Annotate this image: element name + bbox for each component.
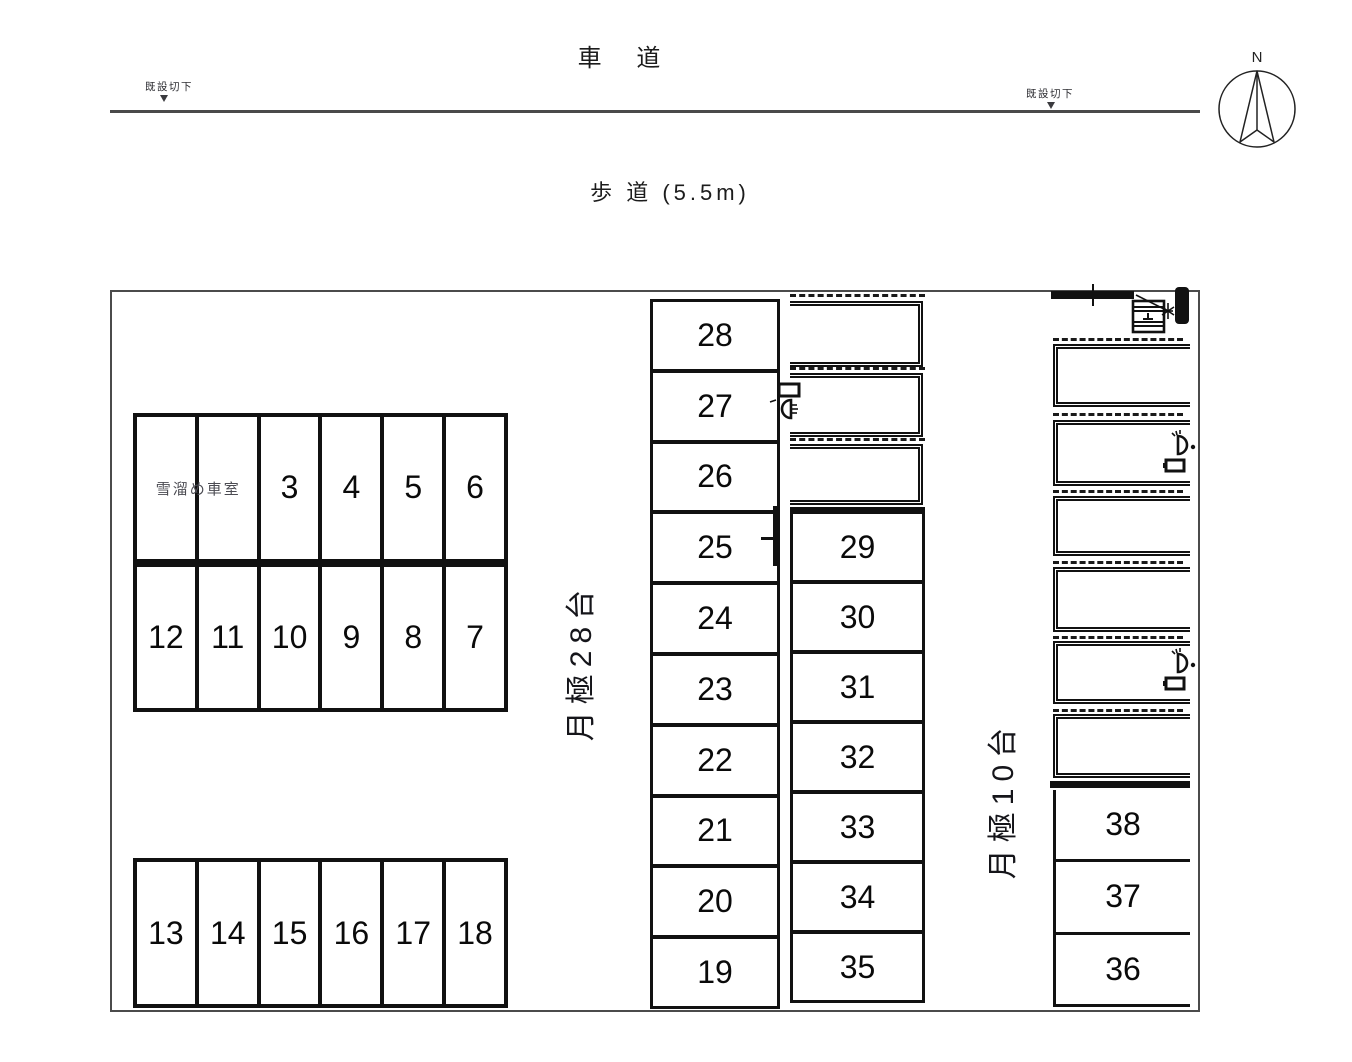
parking-space-cell: 13: [137, 862, 199, 1004]
north-arrow-icon: N: [1210, 42, 1304, 154]
street-lamp-icon: [1163, 430, 1199, 476]
parking-site-plan: 車 道 既設切下 既設切下 歩 道 (5.5m) N 3 4 5 6 12 11…: [0, 0, 1352, 1062]
dividing-wall: [790, 507, 925, 514]
stall-dashed-line: [1053, 636, 1183, 639]
sidewalk-label: 歩 道 (5.5m): [570, 175, 770, 207]
snow-bay-cell: [137, 417, 199, 559]
curb-cut-arrow-icon-left: [160, 95, 168, 102]
parking-space-cell: 18: [446, 862, 504, 1004]
street-lamp-icon: [1163, 648, 1199, 694]
stall-dashed-line: [790, 294, 925, 297]
parking-space-cell: 25: [653, 514, 777, 585]
parking-block-a: 3 4 5 6 12 11 10 9 8 7 雪溜め車室: [133, 413, 508, 712]
parking-block-b: 13 14 15 16 17 18: [133, 858, 508, 1008]
parking-space-cell: 21: [653, 798, 777, 869]
garage-stall: [790, 301, 923, 367]
parking-space-cell: 38: [1056, 790, 1190, 862]
parking-space-cell: 24: [653, 585, 777, 656]
utility-pole-icon: [1175, 287, 1189, 324]
stall-dashed-line: [1053, 561, 1183, 564]
stall-dashed-line: [1053, 338, 1183, 341]
garage-stall: [790, 444, 923, 505]
parking-space-cell: 20: [653, 868, 777, 939]
parking-space-cell: 9: [322, 567, 384, 709]
monthly-28-zone-label: 月極28台: [556, 583, 600, 741]
street-lamp-icon: [768, 382, 802, 422]
parking-space-cell: 31: [793, 654, 922, 724]
block-a-bottom-row: 12 11 10 9 8 7: [137, 567, 504, 709]
parking-space-cell: 11: [199, 567, 261, 709]
curb-cut-arrow-icon-right: [1047, 102, 1055, 109]
parking-space-cell: 26: [653, 444, 777, 515]
garage-stall: [1053, 567, 1190, 632]
parking-space-cell: 8: [384, 567, 446, 709]
curb-cut-label-right: 既設切下: [1026, 86, 1074, 101]
utility-box-icon: [1130, 293, 1178, 337]
stall-dashed-line: [1053, 490, 1183, 493]
dividing-wall: [1050, 781, 1190, 788]
gate-marker: [773, 506, 780, 566]
parking-space-cell: 22: [653, 727, 777, 798]
parking-space-cell: 27: [653, 373, 777, 444]
curb-cut-label-left: 既設切下: [145, 79, 193, 94]
parking-column-d: 29 30 31 32 33 34 35: [790, 514, 925, 1003]
block-b-row: 13 14 15 16 17 18: [137, 862, 504, 1004]
parking-space-cell: 12: [137, 567, 199, 709]
garage-stall: [790, 373, 923, 437]
parking-space-cell: 14: [199, 862, 261, 1004]
stall-dashed-line: [790, 367, 925, 370]
parking-column-e: 38 37 36: [1053, 790, 1190, 1007]
snow-bay-cell: [199, 417, 261, 559]
monthly-10-zone-label: 月極10台: [978, 721, 1022, 879]
stall-dashed-line: [790, 438, 925, 441]
parking-space-cell: 23: [653, 656, 777, 727]
parking-space-cell: 6: [446, 417, 504, 559]
stall-dashed-line: [1053, 413, 1183, 416]
gate-marker-tick: [761, 537, 773, 540]
garage-stall: [1053, 714, 1190, 778]
stall-dashed-line: [1053, 709, 1183, 712]
parking-space-cell: 19: [653, 939, 777, 1006]
parking-space-cell: 36: [1056, 935, 1190, 1007]
block-a-top-row: 3 4 5 6: [137, 417, 504, 559]
parking-space-cell: 35: [793, 934, 922, 1000]
parking-space-cell: 30: [793, 584, 922, 654]
carriageway-label: 車 道: [546, 38, 706, 73]
parking-space-cell: 15: [261, 862, 323, 1004]
parking-space-cell: 29: [793, 514, 922, 584]
parking-space-cell: 4: [322, 417, 384, 559]
parking-space-cell: 33: [793, 794, 922, 864]
garage-stall: [1053, 496, 1190, 556]
north-letter: N: [1252, 49, 1263, 66]
parking-space-cell: 28: [653, 302, 777, 373]
garage-stall: [1053, 344, 1190, 407]
parking-space-cell: 37: [1056, 862, 1190, 934]
parking-space-cell: 5: [384, 417, 446, 559]
parking-space-cell: 17: [384, 862, 446, 1004]
parking-space-cell: 7: [446, 567, 504, 709]
road-edge-line: [110, 110, 1200, 113]
block-a-middle-wall: [137, 559, 504, 567]
wall-segment-tick: [1092, 284, 1094, 306]
parking-column-c: 28 27 26 25 24 23 22 21 20 19: [650, 299, 780, 1009]
parking-space-cell: 16: [322, 862, 384, 1004]
parking-space-cell: 34: [793, 864, 922, 934]
parking-space-cell: 32: [793, 724, 922, 794]
parking-space-cell: 3: [261, 417, 323, 559]
parking-space-cell: 10: [261, 567, 323, 709]
